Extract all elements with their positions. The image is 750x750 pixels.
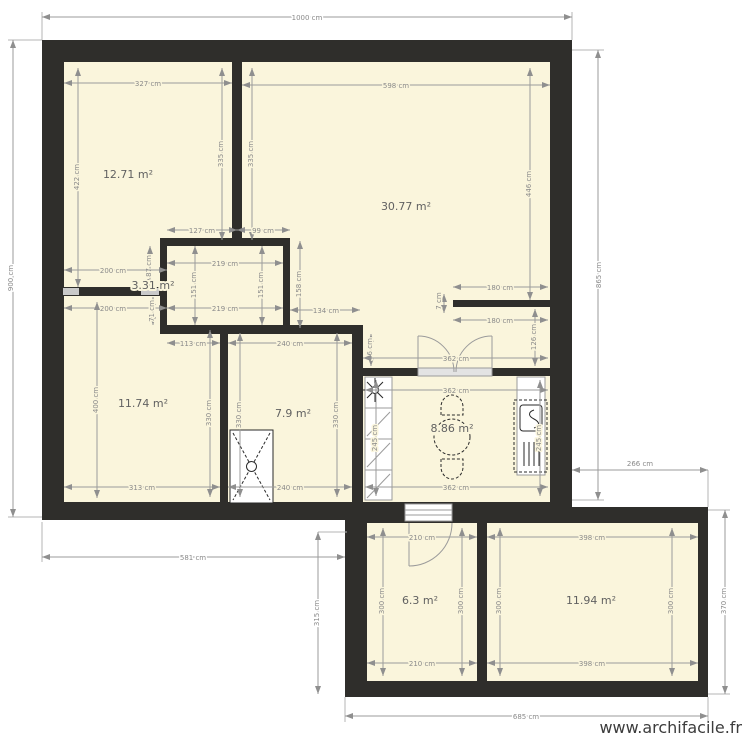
room-label-11-94: 11.94 m² (566, 594, 616, 607)
dim-label: 335 cm (217, 141, 225, 167)
dim-label: 219 cm (212, 260, 238, 268)
room-label-3-31: 3.31 m² (131, 279, 174, 292)
dim-label: 245 cm (535, 425, 543, 451)
dim-label-overall-left: 900 cm (7, 265, 15, 291)
room-label-6-3: 6.3 m² (402, 594, 438, 607)
dim-label: 362 cm (443, 355, 469, 363)
dim-label-lower-left: 315 cm (313, 600, 321, 626)
dim-label: 87 cm (145, 255, 153, 277)
dim-label: 362 cm (443, 484, 469, 492)
dim-label: 330 cm (205, 400, 213, 426)
dim-label: 200 cm (100, 305, 126, 313)
wall-r3-bottom-r5-top (160, 325, 363, 334)
room-label-11-74: 11.74 m² (118, 397, 168, 410)
dim-label: 210 cm (409, 660, 435, 668)
dim-label: 300 cm (378, 588, 386, 614)
dim-label: 398 cm (579, 660, 605, 668)
wall-kitchen-top-left (363, 368, 418, 376)
dim-label: 180 cm (487, 317, 513, 325)
dim-label-overall-right: 865 cm (595, 262, 603, 288)
dim-label: 362 cm (443, 387, 469, 395)
floor-plan-page: 1000 cm 900 cm 865 cm 266 cm 370 cm 685 … (0, 0, 750, 750)
wall-kitchen-top-right (492, 368, 550, 376)
dim-label: 7 cm (435, 292, 443, 310)
dim-label: 134 cm (313, 307, 339, 315)
window-icon (405, 504, 452, 521)
room-label-30-77: 30.77 m² (381, 200, 431, 213)
dim-label: 200 cm (100, 267, 126, 275)
dim-label: 245 cm (371, 425, 379, 451)
dim-label: 330 cm (235, 402, 243, 428)
wall-opening-icon (63, 288, 79, 295)
wall-r3-top (160, 238, 290, 246)
dim-label: 113 cm (180, 340, 206, 348)
shower-tray-icon (230, 430, 273, 503)
dim-label: 240 cm (277, 340, 303, 348)
dim-label: 126 cm (530, 324, 538, 350)
room-label-7-9: 7.9 m² (275, 407, 311, 420)
dim-label: 335 cm (247, 141, 255, 167)
dim-label: 151 cm (190, 272, 198, 298)
dim-label-lower-bottom: 685 cm (513, 713, 539, 721)
dim-label: 327 cm (135, 80, 161, 88)
wall-stub-right (453, 300, 550, 307)
dim-label: 313 cm (129, 484, 155, 492)
dim-label: 210 cm (409, 534, 435, 542)
dim-label: 398 cm (579, 534, 605, 542)
dim-label: 300 cm (495, 588, 503, 614)
wall-r1-r2 (232, 62, 242, 246)
room-label-12-71: 12.71 m² (103, 168, 153, 181)
wall-r7-r8 (477, 523, 487, 681)
dim-label: 300 cm (457, 588, 465, 614)
wall-r3-right (283, 238, 290, 332)
watermark: www.archifacile.fr (599, 718, 742, 737)
dim-label: 219 cm (212, 305, 238, 313)
dim-label-overall-width: 1000 cm (292, 14, 323, 22)
dim-label: 300 cm (667, 588, 675, 614)
dim-label: 158 cm (295, 271, 303, 297)
dim-label: 240 cm (277, 484, 303, 492)
dim-label: 180 cm (487, 284, 513, 292)
dim-label: 422 cm (73, 164, 81, 190)
floor-plan-canvas: 1000 cm 900 cm 865 cm 266 cm 370 cm 685 … (0, 0, 750, 750)
dim-label: 330 cm (332, 402, 340, 428)
dim-label: 400 cm (92, 387, 100, 413)
room-label-8-86: 8.86 m² (430, 422, 473, 435)
dim-label: 71 cm (148, 300, 156, 322)
dim-label: 127 cm (189, 227, 215, 235)
dim-label-upper-bottom: 581 cm (180, 554, 206, 562)
dim-label: 151 cm (257, 272, 265, 298)
dim-label: 99 cm (252, 227, 274, 235)
wall-r4-r5 (220, 325, 228, 502)
dim-label-right-offset: 266 cm (627, 460, 653, 468)
dim-label: 36 cm (366, 338, 374, 360)
dim-label-lower-right: 370 cm (720, 588, 728, 614)
dim-label: 446 cm (525, 171, 533, 197)
wall-r5-r6 (352, 325, 363, 502)
dim-label: 598 cm (383, 82, 409, 90)
